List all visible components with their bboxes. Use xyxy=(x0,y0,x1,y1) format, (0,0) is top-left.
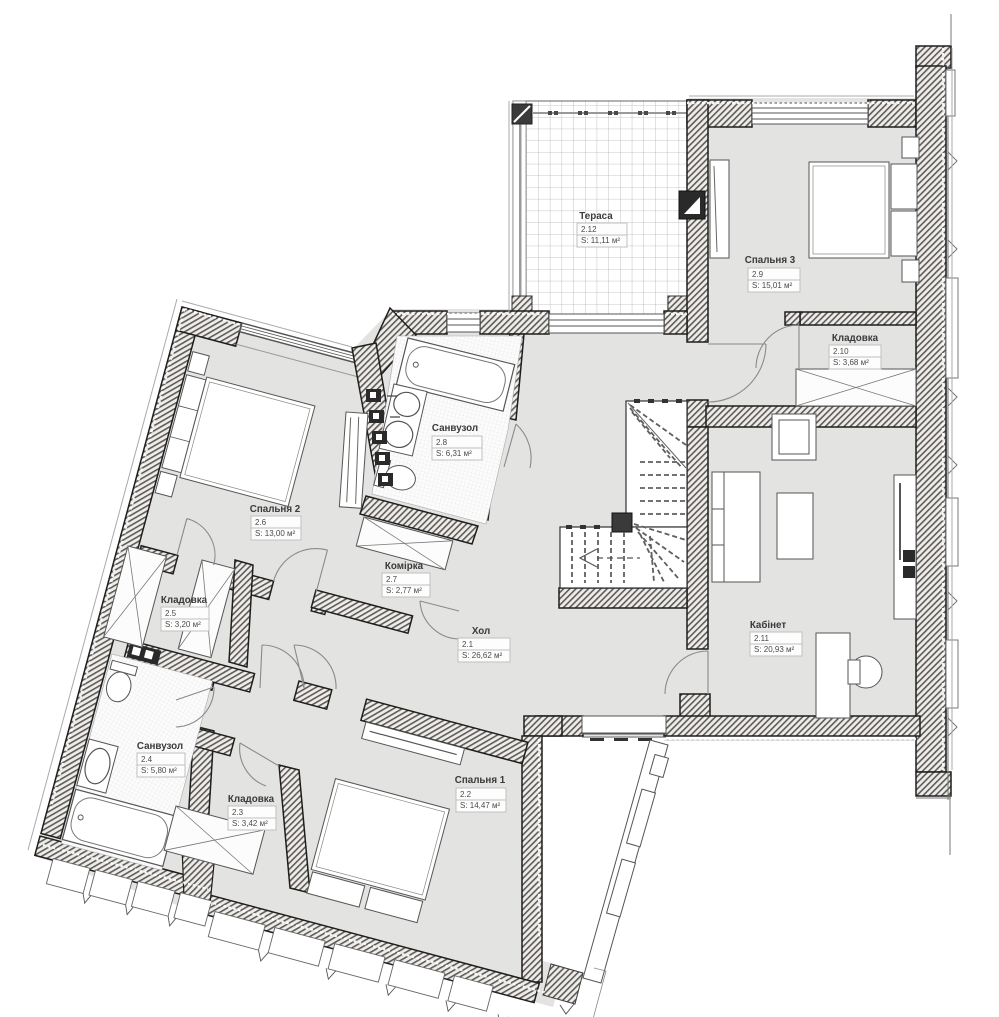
svg-text:S: 5,80 м²: S: 5,80 м² xyxy=(141,766,177,775)
svg-text:Кладовка: Кладовка xyxy=(228,794,275,805)
svg-text:Спальня 3: Спальня 3 xyxy=(745,255,796,266)
svg-text:2.6: 2.6 xyxy=(255,518,267,527)
svg-text:Санвузол: Санвузол xyxy=(137,741,183,752)
svg-text:S: 13,00 м²: S: 13,00 м² xyxy=(255,529,296,538)
svg-text:Хол: Хол xyxy=(472,626,490,637)
svg-text:Спальня 2: Спальня 2 xyxy=(250,504,301,515)
svg-text:2.12: 2.12 xyxy=(581,225,597,234)
svg-text:S: 2,77 м²: S: 2,77 м² xyxy=(386,586,422,595)
svg-text:S: 26,62 м²: S: 26,62 м² xyxy=(462,651,503,660)
svg-text:2.7: 2.7 xyxy=(386,575,398,584)
svg-text:2.11: 2.11 xyxy=(754,634,770,643)
svg-text:2.2: 2.2 xyxy=(460,790,472,799)
svg-text:2.10: 2.10 xyxy=(833,347,849,356)
svg-text:2.3: 2.3 xyxy=(232,808,244,817)
svg-text:2.8: 2.8 xyxy=(436,438,448,447)
svg-text:2.9: 2.9 xyxy=(752,270,764,279)
svg-text:S: 15,01 м²: S: 15,01 м² xyxy=(752,281,793,290)
svg-text:2.4: 2.4 xyxy=(141,755,153,764)
svg-text:Спальня 1: Спальня 1 xyxy=(455,775,506,786)
svg-text:S: 3,68 м²: S: 3,68 м² xyxy=(833,358,869,367)
svg-text:S: 6,31 м²: S: 6,31 м² xyxy=(436,449,472,458)
svg-text:S: 20,93 м²: S: 20,93 м² xyxy=(754,645,795,654)
svg-text:Тераса: Тераса xyxy=(579,211,613,222)
svg-text:Кабінет: Кабінет xyxy=(750,620,787,631)
svg-text:S: 3,20 м²: S: 3,20 м² xyxy=(165,620,201,629)
svg-text:S: 3,42 м²: S: 3,42 м² xyxy=(232,819,268,828)
svg-text:2.1: 2.1 xyxy=(462,640,474,649)
svg-text:S: 14,47 м²: S: 14,47 м² xyxy=(460,801,501,810)
svg-text:Кладовка: Кладовка xyxy=(832,333,879,344)
svg-text:Кладовка: Кладовка xyxy=(161,595,208,606)
svg-text:S: 11,11 м²: S: 11,11 м² xyxy=(581,236,620,245)
svg-text:2.5: 2.5 xyxy=(165,609,177,618)
svg-text:Комірка: Комірка xyxy=(385,561,424,572)
svg-text:Санвузол: Санвузол xyxy=(432,423,478,434)
